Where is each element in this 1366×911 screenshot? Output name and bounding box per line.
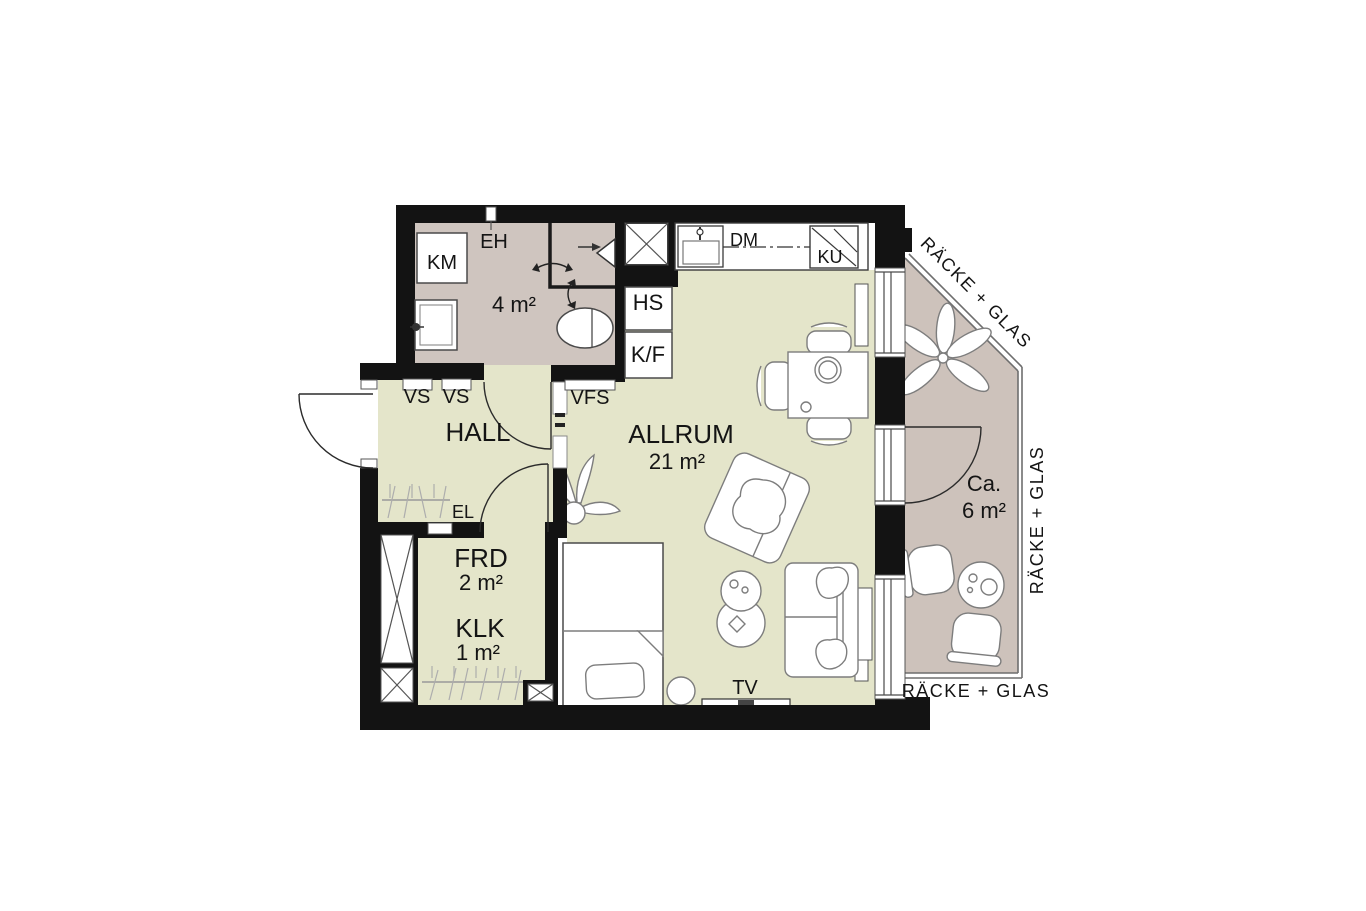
entrance-opening	[360, 380, 378, 468]
dining-chair	[807, 416, 851, 439]
bath-door-gap	[484, 365, 551, 382]
window	[875, 268, 905, 357]
wall-bath-right	[615, 223, 625, 382]
tv-bench	[702, 699, 790, 706]
radiator	[855, 284, 868, 346]
shaft-small	[381, 668, 413, 702]
label-tv: TV	[732, 677, 758, 699]
label-hall: HALL	[445, 417, 510, 447]
balcony-chair-top	[898, 543, 956, 598]
label-eh: EH	[480, 231, 508, 253]
wall-bottom	[360, 705, 905, 730]
side-table	[858, 588, 872, 660]
wall-frd-right	[545, 530, 558, 705]
floor-plan-drawing: KM EH 4 m² HS K/F DM KU VS VS VFS HALL A…	[0, 0, 1366, 911]
balcony-door-panel	[875, 425, 905, 505]
label-vs-right: VS	[443, 386, 470, 408]
wall-right-mid2	[875, 503, 905, 577]
label-vs-left: VS	[404, 386, 431, 408]
label-railing-bottom: RÄCKE + GLAS	[902, 681, 1051, 701]
ventilation-shaft	[625, 223, 668, 265]
label-bath-area: 4 m²	[492, 292, 536, 317]
wall-bath-bottom-left	[360, 363, 484, 380]
el-panel	[428, 523, 452, 534]
label-klk-area: 1 m²	[456, 640, 500, 665]
label-km: KM	[427, 252, 457, 274]
bathroom-sink	[410, 300, 457, 350]
wall-bath-left	[396, 223, 415, 378]
kitchen-sink	[678, 226, 723, 267]
wall-shaft-bottom	[615, 265, 678, 287]
cased-opening	[553, 382, 567, 468]
toilet	[557, 308, 613, 348]
floor-plan-page: KM EH 4 m² HS K/F DM KU VS VS VFS HALL A…	[0, 0, 1366, 911]
label-klk: KLK	[455, 613, 505, 643]
dining-chair	[807, 331, 851, 354]
label-frd: FRD	[454, 543, 507, 573]
wall-bath-bottom-right	[551, 365, 625, 382]
label-vfs: VFS	[571, 387, 610, 409]
label-allrum-area: 21 m²	[649, 449, 705, 474]
frd-door-gap	[484, 522, 548, 538]
wall-bottom-right	[875, 697, 930, 730]
balcony-chair-bottom	[947, 611, 1006, 666]
wall-left	[360, 468, 378, 730]
wall-top	[396, 205, 905, 223]
label-railing-right: RÄCKE + GLAS	[1027, 446, 1047, 595]
pillow	[585, 663, 645, 700]
wall-notch	[896, 228, 912, 252]
bed	[563, 543, 663, 707]
coffee-tables	[717, 571, 765, 647]
label-balcony-ca: Ca.	[967, 471, 1001, 496]
label-allrum: ALLRUM	[628, 419, 733, 449]
label-frd-area: 2 m²	[459, 570, 503, 595]
balcony-table	[958, 562, 1004, 608]
window	[875, 575, 905, 699]
wall-right-mid1	[875, 355, 905, 427]
label-dm: DM	[730, 230, 758, 250]
shaft-klk-corner	[528, 684, 553, 701]
label-hs: HS	[633, 290, 664, 315]
label-ku: KU	[817, 247, 842, 267]
label-balcony-area: 6 m²	[962, 498, 1006, 523]
stool	[667, 677, 695, 705]
label-el: EL	[452, 502, 474, 522]
shaft-tall	[381, 535, 413, 663]
label-kf: K/F	[631, 342, 665, 367]
